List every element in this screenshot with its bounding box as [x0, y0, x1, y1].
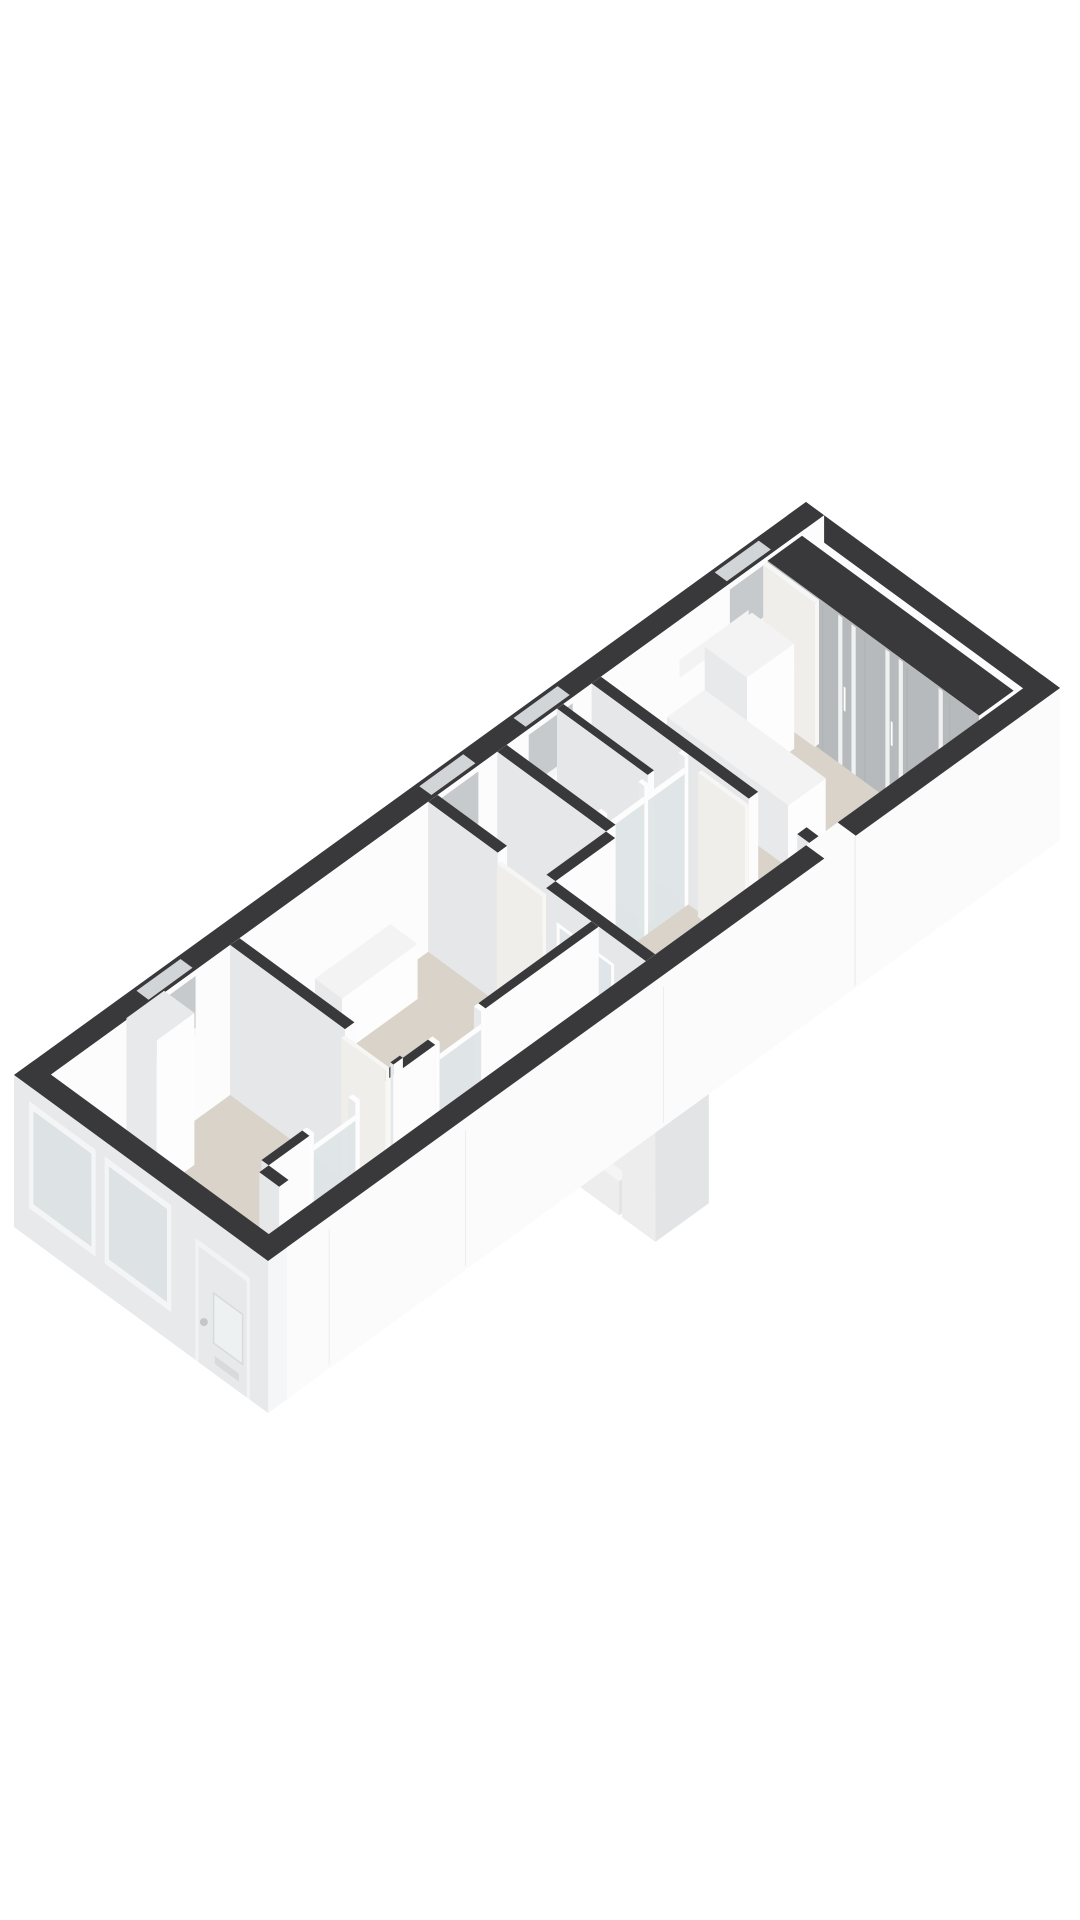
facade-seam	[663, 987, 664, 1124]
closet-door-strip	[885, 649, 889, 800]
front-door-knob	[200, 1318, 208, 1326]
facade-seam	[329, 1228, 330, 1365]
glass-wall-post-front	[685, 754, 689, 907]
sw-gable-corner-strip	[268, 1247, 287, 1413]
wardrobe-panel-line	[864, 636, 865, 783]
wardrobe-panel-line	[822, 605, 823, 752]
closet-door-handle	[844, 687, 846, 712]
closet-door-strip	[852, 624, 856, 775]
floorplan-figure	[0, 0, 1080, 1920]
closet-door-handle	[891, 721, 893, 746]
floorplan-3d-render	[0, 0, 1080, 1920]
livingroom-door-leaf-front	[815, 600, 819, 747]
floorplan-canvas	[0, 0, 1080, 1920]
glass-wall-post-front	[644, 784, 648, 937]
facade-seam	[465, 1130, 466, 1267]
closet-door-strip	[838, 615, 842, 766]
